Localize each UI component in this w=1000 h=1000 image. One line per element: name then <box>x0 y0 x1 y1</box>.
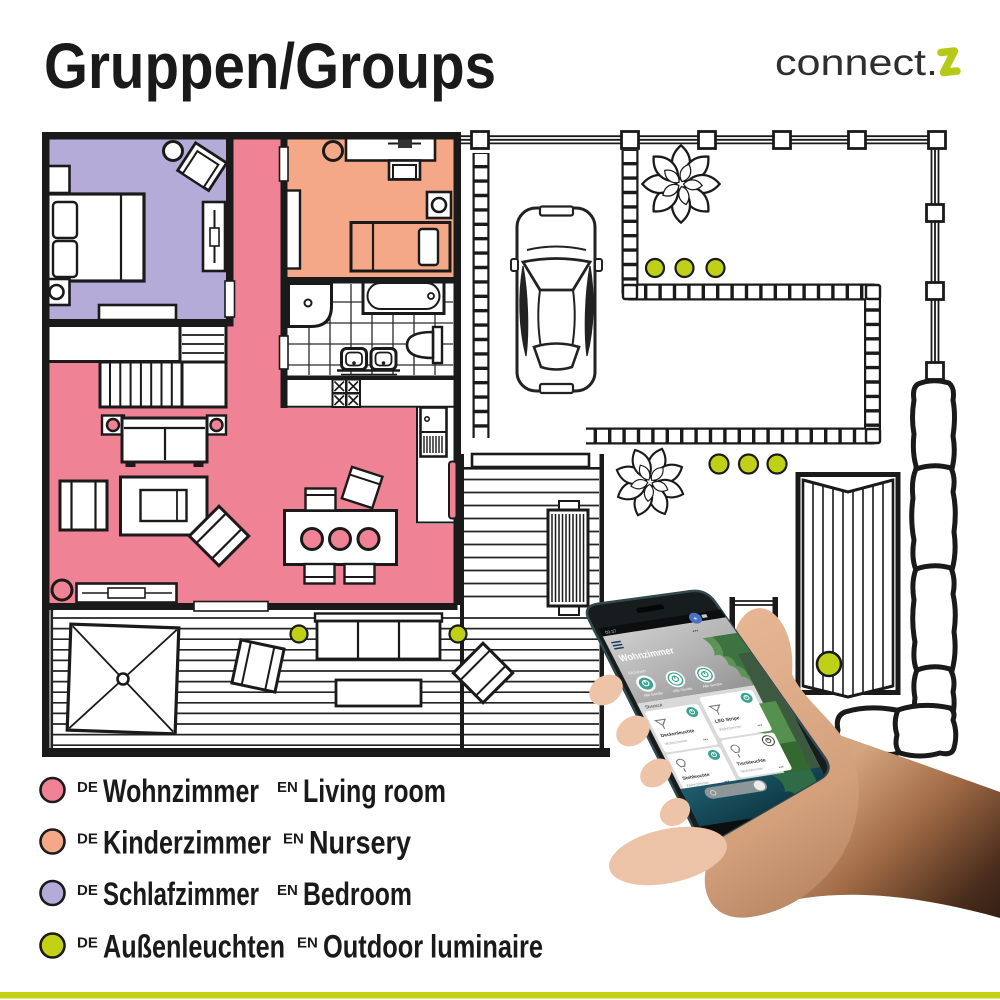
svg-text:EN: EN <box>297 935 318 952</box>
svg-text:EN: EN <box>277 882 298 899</box>
svg-text:DE: DE <box>77 779 98 796</box>
svg-text:Außenleuchten: Außenleuchten <box>103 929 285 965</box>
svg-text:Nursery: Nursery <box>309 825 411 861</box>
svg-text:Outdoor luminaire: Outdoor luminaire <box>323 929 543 965</box>
svg-text:DE: DE <box>77 935 98 952</box>
svg-text:Kinderzimmer: Kinderzimmer <box>103 825 271 861</box>
svg-text:EN: EN <box>283 831 304 848</box>
svg-text:Bedroom: Bedroom <box>303 876 412 912</box>
svg-text:DE: DE <box>77 882 98 899</box>
svg-text:connect.: connect. <box>775 42 938 83</box>
svg-text:EN: EN <box>277 779 298 796</box>
svg-text:Schlafzimmer: Schlafzimmer <box>103 876 259 912</box>
svg-text:Gruppen/Groups: Gruppen/Groups <box>44 30 496 102</box>
svg-text:DE: DE <box>77 831 98 848</box>
svg-text:Living room: Living room <box>303 773 446 809</box>
svg-text:Wohnzimmer: Wohnzimmer <box>103 773 259 809</box>
